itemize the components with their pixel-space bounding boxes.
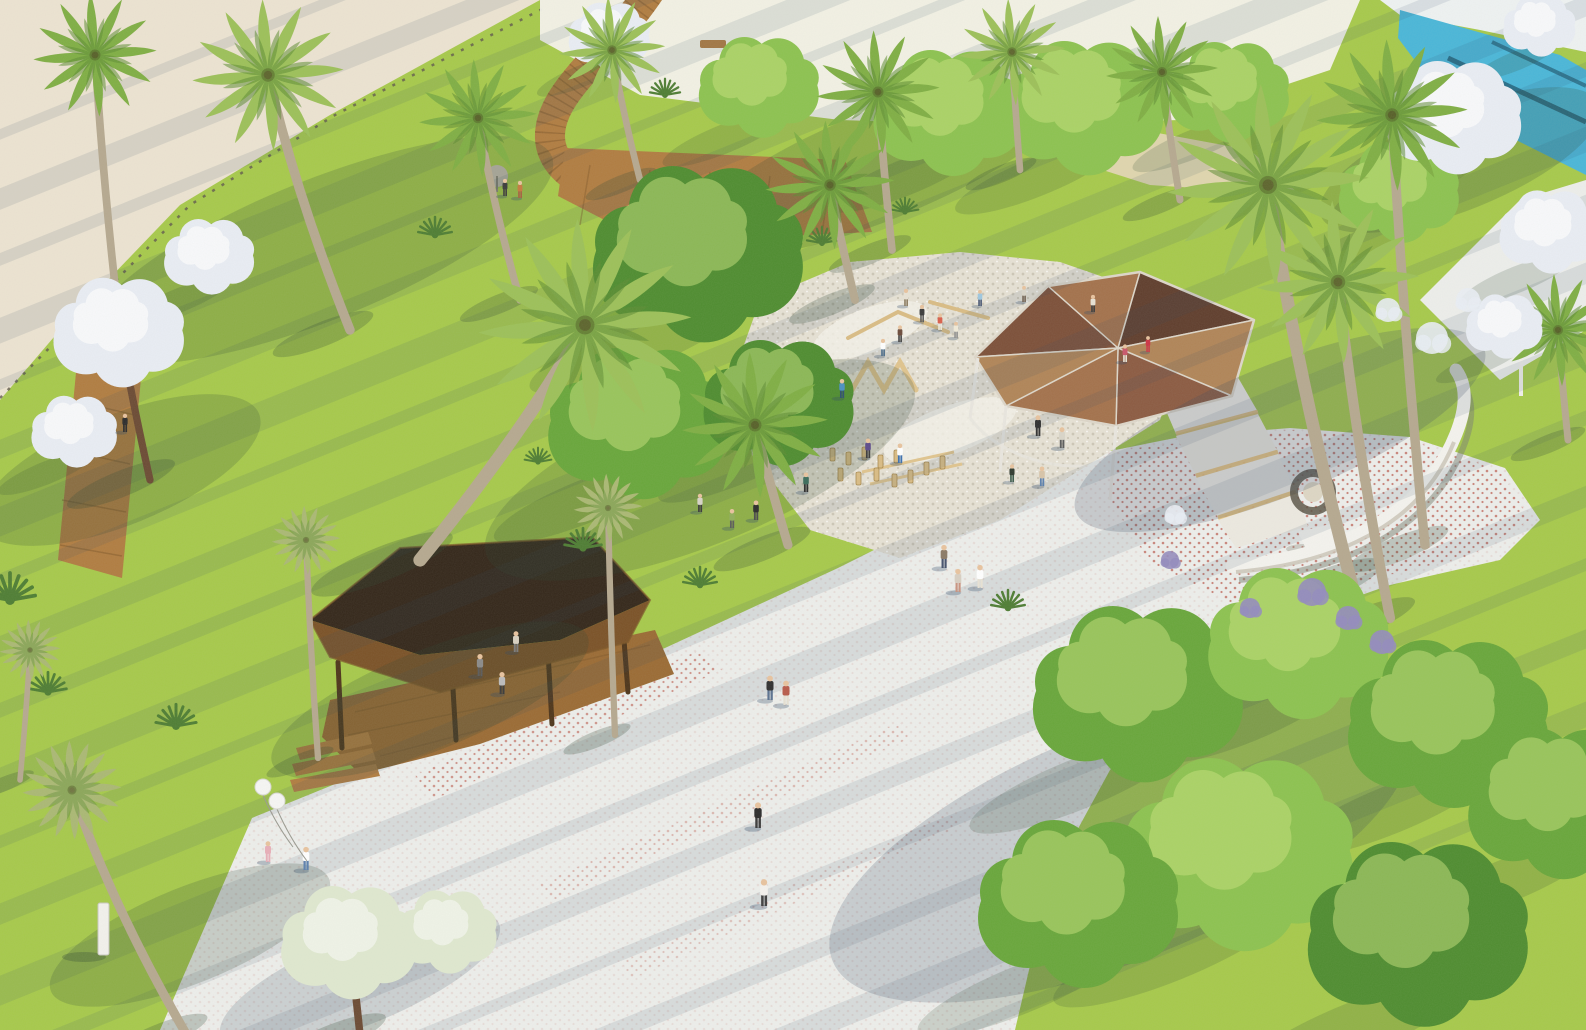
person-legs [956,331,958,338]
person-legs [732,520,734,528]
person-torso [265,846,271,854]
person-legs [520,191,522,198]
person-head [881,339,885,343]
person-legs [1123,355,1125,362]
person-legs [306,861,308,871]
person-torso [977,570,984,579]
person-torso [499,677,505,686]
person-torso [477,659,483,668]
person-head [1022,286,1026,290]
person-legs [783,695,785,705]
person-torso [920,309,925,316]
stepping-post [878,455,883,468]
person-torso [760,885,768,895]
person-torso [1122,348,1127,355]
person-legs [898,455,900,463]
person-head [755,802,761,808]
person-legs [1093,305,1095,312]
person-torso [881,343,886,350]
person-legs [500,685,502,694]
person-legs [123,425,125,433]
person-legs [842,390,844,398]
person-legs [806,484,808,492]
person-legs [978,579,980,589]
person-head [1036,415,1041,420]
person-legs [761,895,764,906]
person-head [898,325,902,329]
person-torso [518,185,523,192]
person-legs [883,349,885,356]
person-head [698,494,702,498]
park-render: Aerial architectural rendering of a trop… [0,0,1586,1030]
person-head [977,565,983,571]
person-legs [755,818,757,829]
person-legs [754,512,756,520]
person-legs [1022,295,1024,302]
person-legs [980,299,982,306]
person-legs [900,455,902,463]
person-head [904,289,908,293]
person-head [938,313,942,317]
person-torso [898,329,903,335]
person-legs [840,390,842,398]
person-legs [698,505,700,513]
person-head [804,472,809,477]
person-torso [839,383,844,390]
person-torso [865,443,871,451]
person-torso [954,325,959,331]
person-legs [700,505,702,513]
person-torso [1039,471,1045,479]
person-head [1091,295,1095,299]
person-legs [1146,346,1147,353]
person-legs [1038,428,1040,437]
person-legs [1010,475,1012,482]
person-head [866,438,871,443]
person-legs [756,512,758,520]
person-head [514,631,519,636]
person-torso [978,293,983,299]
person-legs [787,695,789,705]
person-head [955,569,961,575]
stepping-post [856,472,861,485]
person-torso [904,293,909,300]
person-legs [956,583,958,593]
person-torso [697,498,702,505]
person-torso [938,317,943,323]
person-torso [897,448,903,456]
person-head [1010,464,1014,468]
person-legs [920,315,922,322]
person-legs [898,335,900,342]
person-head [730,509,735,514]
person-torso [783,686,790,696]
person-torso [1059,432,1065,440]
person-legs [480,667,482,676]
person-legs [268,854,270,863]
person-legs [922,315,924,322]
person-legs [1125,355,1127,362]
person-legs [730,520,732,528]
person-head [266,841,271,846]
person-legs [759,818,761,829]
person-torso [122,418,127,425]
person-torso [803,477,809,485]
park-render-stage: Aerial architectural rendering of a trop… [0,0,1586,1030]
person-legs [942,559,944,569]
person-head [518,181,522,185]
person-head [761,879,767,885]
person-legs [125,425,127,433]
person-torso [1009,468,1014,475]
person-legs [503,189,505,196]
person-head [303,847,309,853]
person-legs [868,450,870,458]
person-legs [944,559,946,569]
person-legs [304,861,306,871]
person-legs [767,690,769,700]
person-legs [502,685,504,694]
person-legs [518,191,520,198]
person-head [898,443,903,448]
person-torso [955,574,962,583]
person-legs [478,667,480,676]
person-legs [765,895,768,906]
person-torso [1091,299,1096,306]
person-legs [954,331,956,338]
person-head [503,179,507,183]
person-legs [1012,475,1014,482]
person-head [941,545,947,551]
person-legs [958,583,960,593]
person-legs [904,299,906,306]
person-legs [881,349,883,356]
person-head [477,654,482,659]
person-legs [1060,440,1062,449]
person-head [954,322,958,326]
person-head [840,379,845,384]
person-head [978,290,982,294]
person-head [499,672,504,677]
person-legs [266,854,268,863]
person-torso [513,636,519,644]
person-legs [1036,428,1038,437]
person-legs [516,644,518,653]
person-head [1040,466,1045,471]
person-head [1123,344,1127,348]
person-legs [906,299,908,306]
person-legs [866,450,868,458]
person-torso [503,183,508,190]
person-torso [754,808,761,818]
person-legs [1062,440,1064,449]
person-head [1060,427,1065,432]
person-torso [1146,340,1151,346]
person-torso [1022,289,1027,295]
person-legs [978,299,980,306]
person-legs [804,484,806,492]
person-legs [900,335,902,342]
person-legs [980,579,982,589]
person-legs [1091,305,1093,312]
person-head [767,676,773,682]
person-legs [1024,295,1026,302]
person-head [920,305,924,309]
person-legs [938,323,940,330]
person-legs [514,644,516,653]
stepping-post [874,468,879,481]
person-head [754,500,759,505]
person-torso [729,513,734,520]
person-head [1146,336,1150,340]
person-head [123,414,127,418]
person-torso [767,681,774,691]
person-legs [940,323,942,330]
person-torso [1035,420,1041,428]
person-torso [753,505,759,513]
person-head [783,681,789,687]
person-legs [1040,478,1042,486]
person-legs [771,690,773,700]
person-legs [505,189,507,196]
person-legs [1042,478,1044,486]
person-torso [941,550,948,559]
person-legs [1148,346,1149,353]
